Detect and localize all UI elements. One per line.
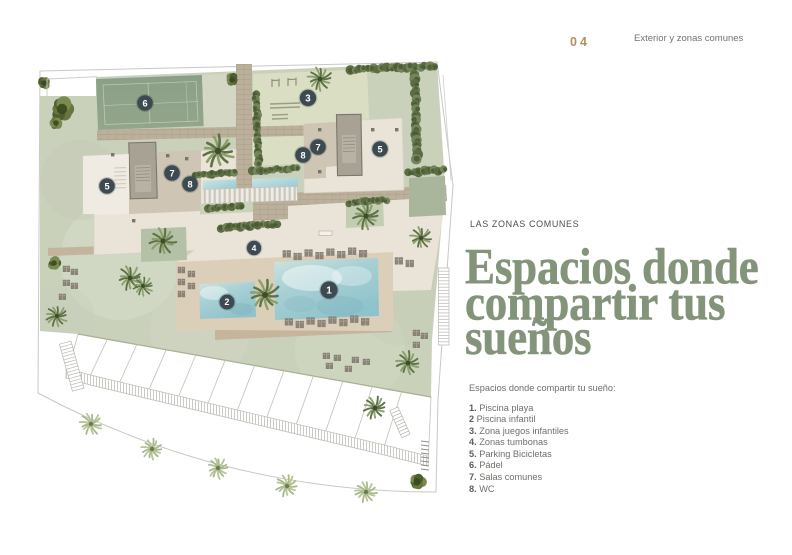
svg-text:8: 8 bbox=[187, 179, 192, 189]
svg-text:2: 2 bbox=[225, 297, 230, 307]
svg-text:4: 4 bbox=[252, 243, 257, 253]
svg-text:8: 8 bbox=[300, 150, 305, 160]
svg-text:3: 3 bbox=[305, 93, 311, 104]
svg-text:1: 1 bbox=[326, 286, 332, 297]
svg-text:5: 5 bbox=[104, 181, 109, 191]
svg-text:6: 6 bbox=[142, 98, 147, 108]
svg-text:7: 7 bbox=[169, 168, 174, 178]
svg-text:5: 5 bbox=[377, 144, 382, 154]
svg-text:7: 7 bbox=[315, 142, 320, 152]
